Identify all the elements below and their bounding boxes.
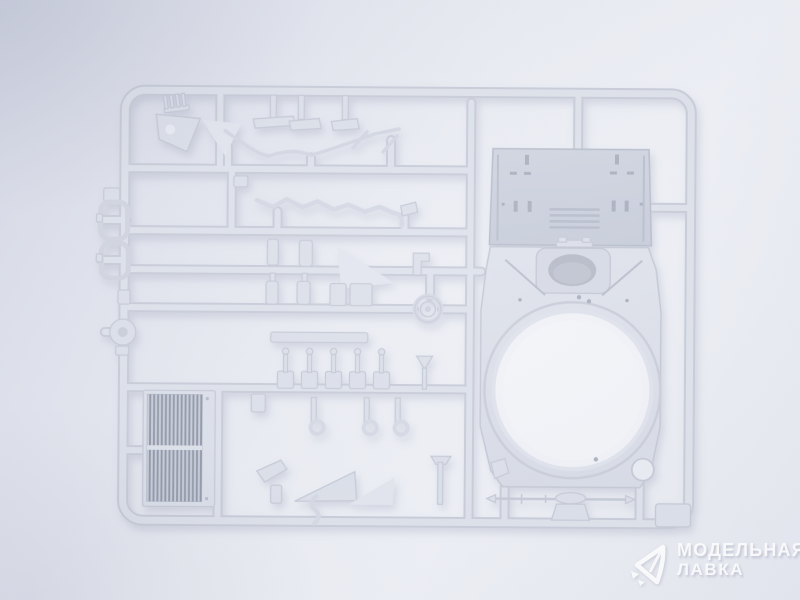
watermark-line2: ЛАВКА [677,561,800,578]
turret-roof-panel-part [480,247,662,488]
pin-fittings-row-part [277,348,432,389]
radiator-grille-part [143,390,216,506]
top-bracket-parts [253,95,359,131]
round-cutout [632,459,654,481]
small-block-part [234,176,248,187]
bottom-triangle-parts [256,455,450,524]
gem-arrows-logo-icon [630,544,668,586]
corner-tab-part [655,504,690,527]
pulley-wheel-part [110,319,136,355]
product-photo: МОДЕЛЬНАЯ ЛАВКА [0,0,800,600]
engine-deck-panel-part [489,149,652,250]
watermark: МОДЕЛЬНАЯ ЛАВКА [630,541,800,586]
sprue-photo [0,0,800,600]
hook-fitting-parts [251,394,408,435]
cylinder-parts [267,239,394,289]
flat-strip-part [271,332,368,343]
watermark-line1: МОДЕЛЬНАЯ [677,541,800,559]
